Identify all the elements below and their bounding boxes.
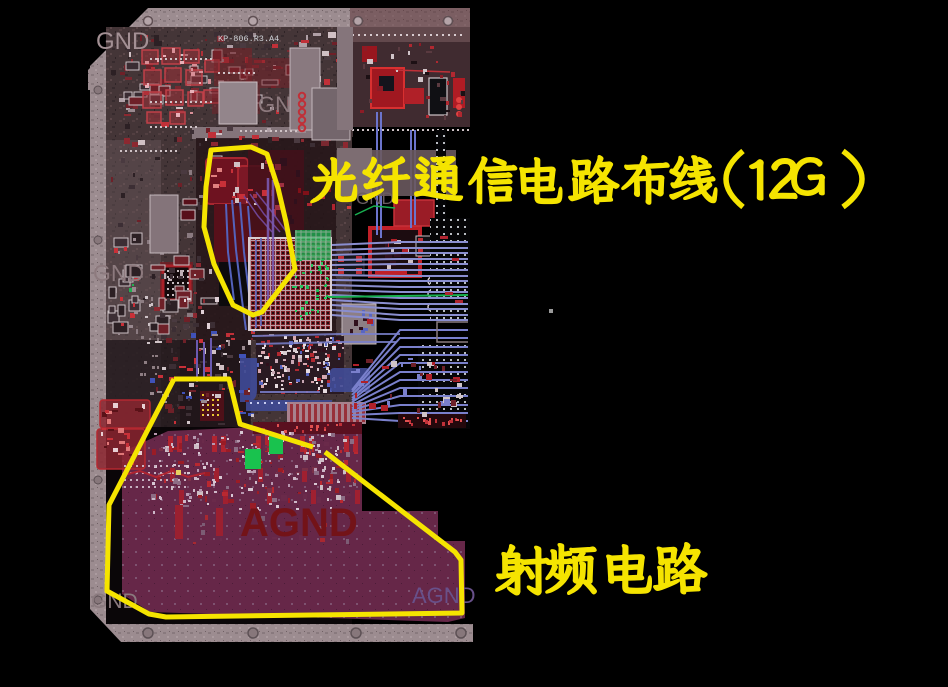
svg-text:AGND: AGND: [412, 583, 476, 608]
svg-text:AGND: AGND: [240, 501, 358, 545]
svg-text:GND: GND: [93, 260, 144, 286]
svg-text:KP-806.R3.A4: KP-806.R3.A4: [218, 34, 279, 44]
svg-text:GND: GND: [96, 28, 149, 55]
